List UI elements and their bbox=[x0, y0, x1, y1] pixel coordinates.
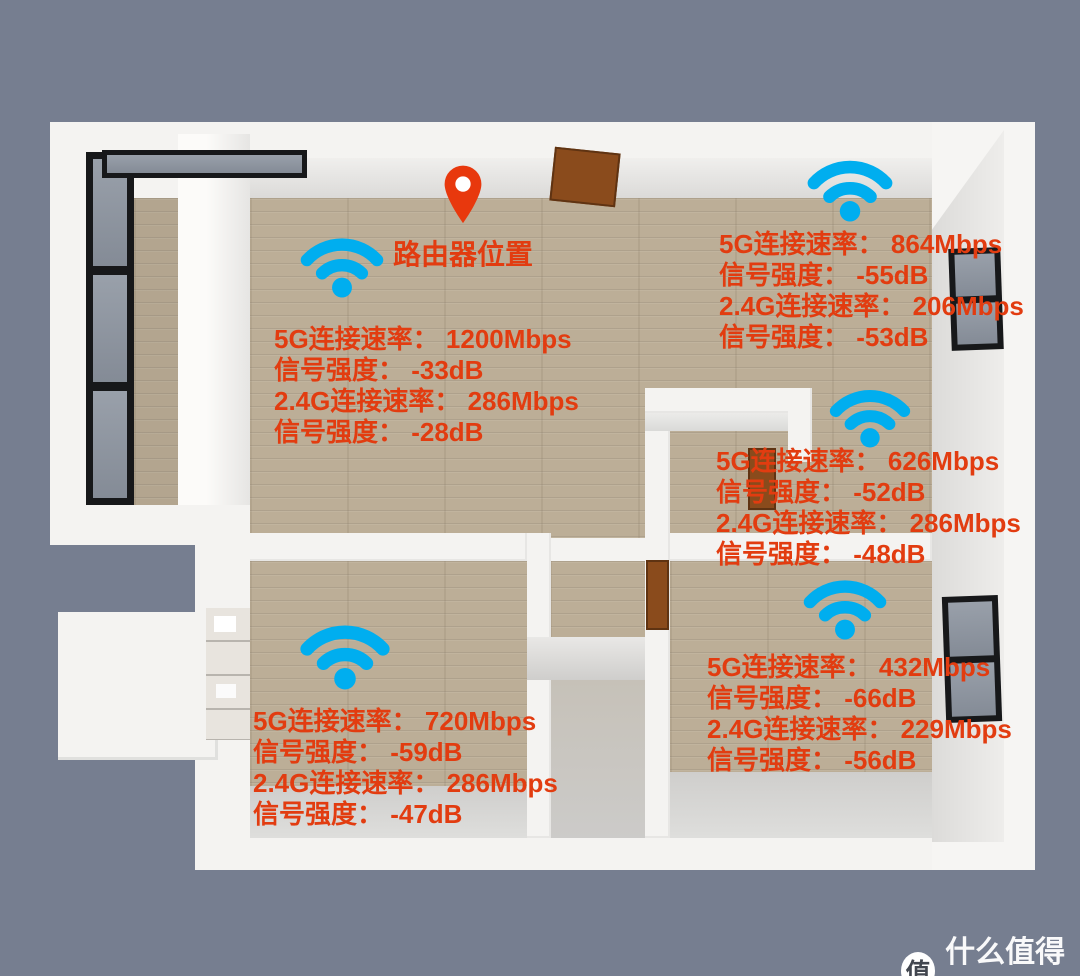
measurement-line: 信号强度： -48dB bbox=[716, 539, 1021, 570]
wifi-measurement-living-room: 5G连接速率： 1200Mbps 信号强度： -33dB 2.4G连接速率： 2… bbox=[274, 324, 579, 448]
measurement-line: 5G连接速率： 720Mbps bbox=[253, 706, 558, 737]
measurement-line: 信号强度： -52dB bbox=[716, 477, 1021, 508]
closet-shelves bbox=[206, 608, 250, 740]
measurement-line: 信号强度： -66dB bbox=[707, 683, 1012, 714]
wifi-measurement-middle-right-room: 5G连接速率： 626Mbps 信号强度： -52dB 2.4G连接速率： 28… bbox=[716, 446, 1021, 570]
wall-midright-top-face bbox=[645, 413, 812, 431]
watermark-text: 什么值得买 bbox=[945, 927, 1080, 976]
balcony-window bbox=[86, 152, 134, 505]
wall-living-bottomleft bbox=[250, 533, 527, 561]
wifi-coverage-floorplan: 路由器位置 5G连接速率： 1200Mbps 信号强度： -33dB 2.4G连… bbox=[0, 0, 1080, 976]
shelf-item bbox=[216, 684, 236, 698]
measurement-line: 5G连接速率： 864Mbps bbox=[719, 229, 1024, 260]
bay-bumpout bbox=[58, 612, 218, 760]
entry-door bbox=[549, 147, 620, 208]
bottom-left-room-door bbox=[646, 560, 669, 630]
measurement-line: 信号强度： -47dB bbox=[253, 799, 558, 830]
balcony-top-window bbox=[102, 150, 307, 178]
router-location-label: 路由器位置 bbox=[393, 233, 533, 273]
wifi-icon bbox=[798, 146, 902, 222]
bottom-right-wall-inner-face bbox=[670, 772, 932, 838]
measurement-line: 2.4G连接速率： 286Mbps bbox=[716, 508, 1021, 539]
wifi-icon bbox=[820, 376, 920, 448]
watermark: 值 什么值得买 bbox=[901, 927, 1080, 976]
window-pane bbox=[93, 391, 127, 498]
wifi-measurement-bottom-right-room: 5G连接速率： 432Mbps 信号强度： -66dB 2.4G连接速率： 22… bbox=[707, 652, 1012, 776]
window-pane bbox=[948, 601, 994, 656]
measurement-line: 信号强度： -53dB bbox=[719, 322, 1024, 353]
measurement-line: 信号强度： -56dB bbox=[707, 745, 1012, 776]
router-pin-icon bbox=[440, 163, 486, 225]
watermark-badge-icon: 值 bbox=[901, 952, 935, 976]
measurement-line: 2.4G连接速率： 286Mbps bbox=[274, 386, 579, 417]
wifi-measurement-top-right-room: 5G连接速率： 864Mbps 信号强度： -55dB 2.4G连接速率： 20… bbox=[719, 229, 1024, 353]
bathroom-floor bbox=[550, 680, 645, 838]
balcony-divider-wall bbox=[178, 134, 250, 538]
corridor-floor bbox=[550, 561, 645, 640]
wifi-icon bbox=[793, 566, 897, 640]
measurement-line: 信号强度： -55dB bbox=[719, 260, 1024, 291]
measurement-line: 信号强度： -59dB bbox=[253, 737, 558, 768]
window-pane bbox=[93, 275, 127, 382]
measurement-line: 2.4G连接速率： 206Mbps bbox=[719, 291, 1024, 322]
balcony-floor bbox=[134, 198, 178, 505]
wifi-measurement-bottom-left-room: 5G连接速率： 720Mbps 信号强度： -59dB 2.4G连接速率： 28… bbox=[253, 706, 558, 830]
measurement-line: 5G连接速率： 626Mbps bbox=[716, 446, 1021, 477]
balcony-sill-wall bbox=[50, 505, 250, 545]
wifi-icon bbox=[292, 224, 392, 298]
wifi-icon bbox=[290, 610, 400, 690]
measurement-line: 2.4G连接速率： 229Mbps bbox=[707, 714, 1012, 745]
measurement-line: 信号强度： -33dB bbox=[274, 355, 579, 386]
window-pane bbox=[107, 155, 302, 173]
wall-midright-top bbox=[645, 388, 812, 413]
measurement-line: 2.4G连接速率： 286Mbps bbox=[253, 768, 558, 799]
measurement-line: 5G连接速率： 432Mbps bbox=[707, 652, 1012, 683]
measurement-line: 信号强度： -28dB bbox=[274, 417, 579, 448]
measurement-line: 5G连接速率： 1200Mbps bbox=[274, 324, 579, 355]
shelf-item bbox=[214, 616, 236, 632]
